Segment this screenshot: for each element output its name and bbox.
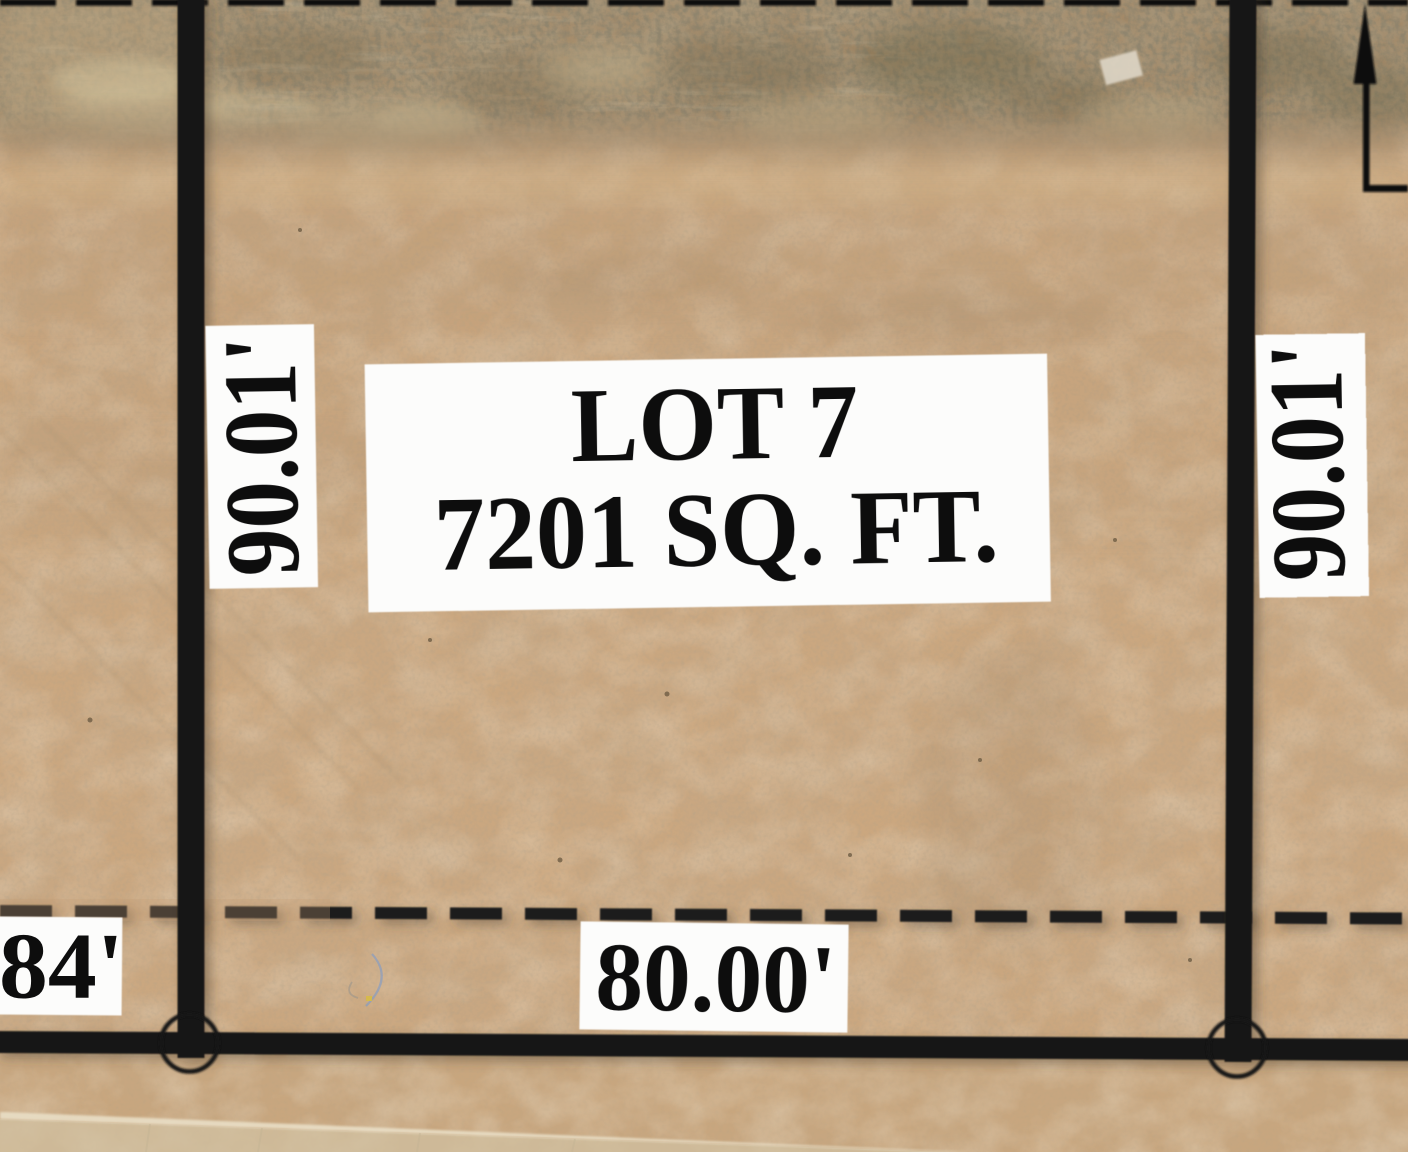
svg-text:90.01': 90.01' <box>1247 342 1368 582</box>
svg-text:90.01': 90.01' <box>202 335 322 577</box>
svg-text:80.00': 80.00' <box>595 922 837 1033</box>
svg-text:84': 84' <box>0 913 124 1018</box>
svg-text:LOT 7: LOT 7 <box>570 364 859 485</box>
svg-text:7201 SQ. FT.: 7201 SQ. FT. <box>433 467 1000 593</box>
